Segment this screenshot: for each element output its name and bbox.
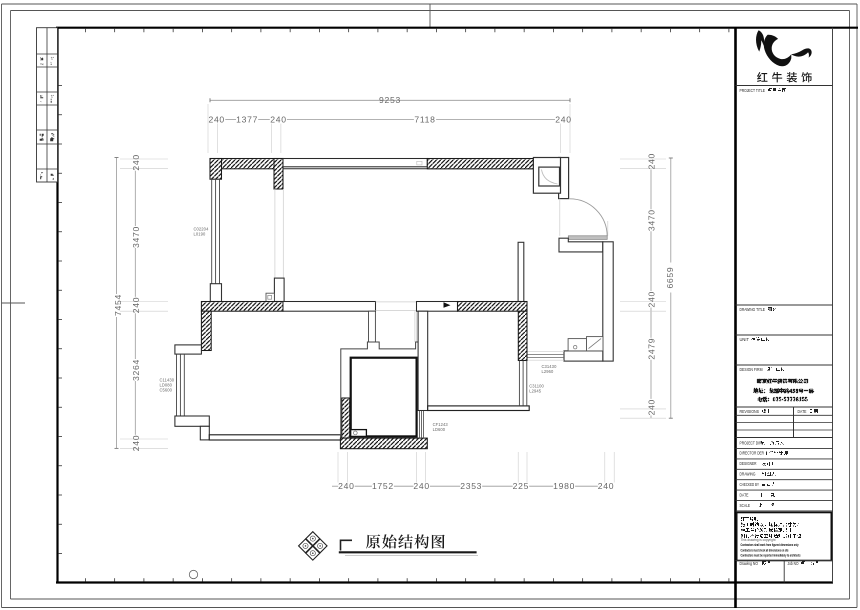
svg-text:1377: 1377: [236, 115, 258, 125]
svg-text:Contractors must check all dim: Contractors must check all dimensions on…: [741, 549, 789, 553]
svg-text:240: 240: [131, 297, 141, 313]
svg-text:240: 240: [338, 481, 354, 491]
svg-text:3470: 3470: [647, 209, 657, 231]
svg-text:3264: 3264: [131, 359, 141, 381]
svg-text:DATE: DATE: [740, 492, 749, 497]
svg-text:240: 240: [555, 115, 571, 125]
svg-text:Contractors shall work from fi: Contractors shall work from figured dime…: [741, 543, 799, 547]
svg-text:Drawing NO: Drawing NO: [740, 561, 759, 566]
svg-text:2353: 2353: [460, 481, 482, 491]
svg-text:240: 240: [647, 291, 657, 307]
svg-text:UNIT: UNIT: [740, 337, 750, 342]
svg-text:6659: 6659: [665, 267, 675, 289]
svg-text:240: 240: [208, 115, 224, 125]
svg-text:DRAWING: DRAWING: [740, 472, 756, 477]
svg-text:REVISIONS: REVISIONS: [740, 409, 760, 414]
svg-text:C5600: C5600: [160, 388, 173, 393]
svg-text:DESIGN FIRM: DESIGN FIRM: [740, 367, 763, 372]
svg-text:CHECKED BY: CHECKED BY: [740, 482, 760, 487]
svg-text:240: 240: [131, 154, 141, 170]
svg-text:240: 240: [131, 435, 141, 451]
svg-text:Contractors must be reported i: Contractors must be reported immediately…: [741, 553, 801, 557]
svg-text:LD600: LD600: [433, 427, 446, 432]
svg-text:1752: 1752: [372, 481, 394, 491]
svg-text:L2960: L2960: [542, 369, 555, 374]
svg-text:7118: 7118: [414, 115, 435, 125]
svg-text:240: 240: [598, 481, 614, 491]
svg-text:This drawing is copyright: This drawing is copyright: [741, 538, 776, 542]
svg-text:DIRECTOR DER: DIRECTOR DER: [740, 451, 765, 456]
svg-text:DESIGNER: DESIGNER: [740, 461, 757, 466]
svg-text:9253: 9253: [379, 95, 401, 105]
svg-text:7454: 7454: [113, 294, 123, 316]
svg-text:PROJECT DIR: PROJECT DIR: [740, 440, 762, 445]
svg-text:240: 240: [647, 399, 657, 415]
svg-text:L2945: L2945: [529, 389, 542, 394]
svg-text:240: 240: [413, 481, 429, 491]
svg-text:Job NO: Job NO: [788, 561, 800, 566]
svg-text:1980: 1980: [553, 481, 575, 491]
svg-text:240: 240: [270, 115, 286, 125]
svg-text:DRAWING TITLE: DRAWING TITLE: [740, 307, 766, 312]
svg-text:L0190: L0190: [194, 232, 207, 237]
svg-text:225: 225: [513, 481, 529, 491]
svg-text:3470: 3470: [131, 226, 141, 248]
svg-text:240: 240: [647, 153, 657, 169]
svg-text:PROJECT TITLE: PROJECT TITLE: [740, 88, 766, 93]
svg-text:SCALE: SCALE: [740, 503, 751, 508]
svg-text:2479: 2479: [647, 338, 657, 360]
svg-text:DATE: DATE: [798, 409, 807, 414]
